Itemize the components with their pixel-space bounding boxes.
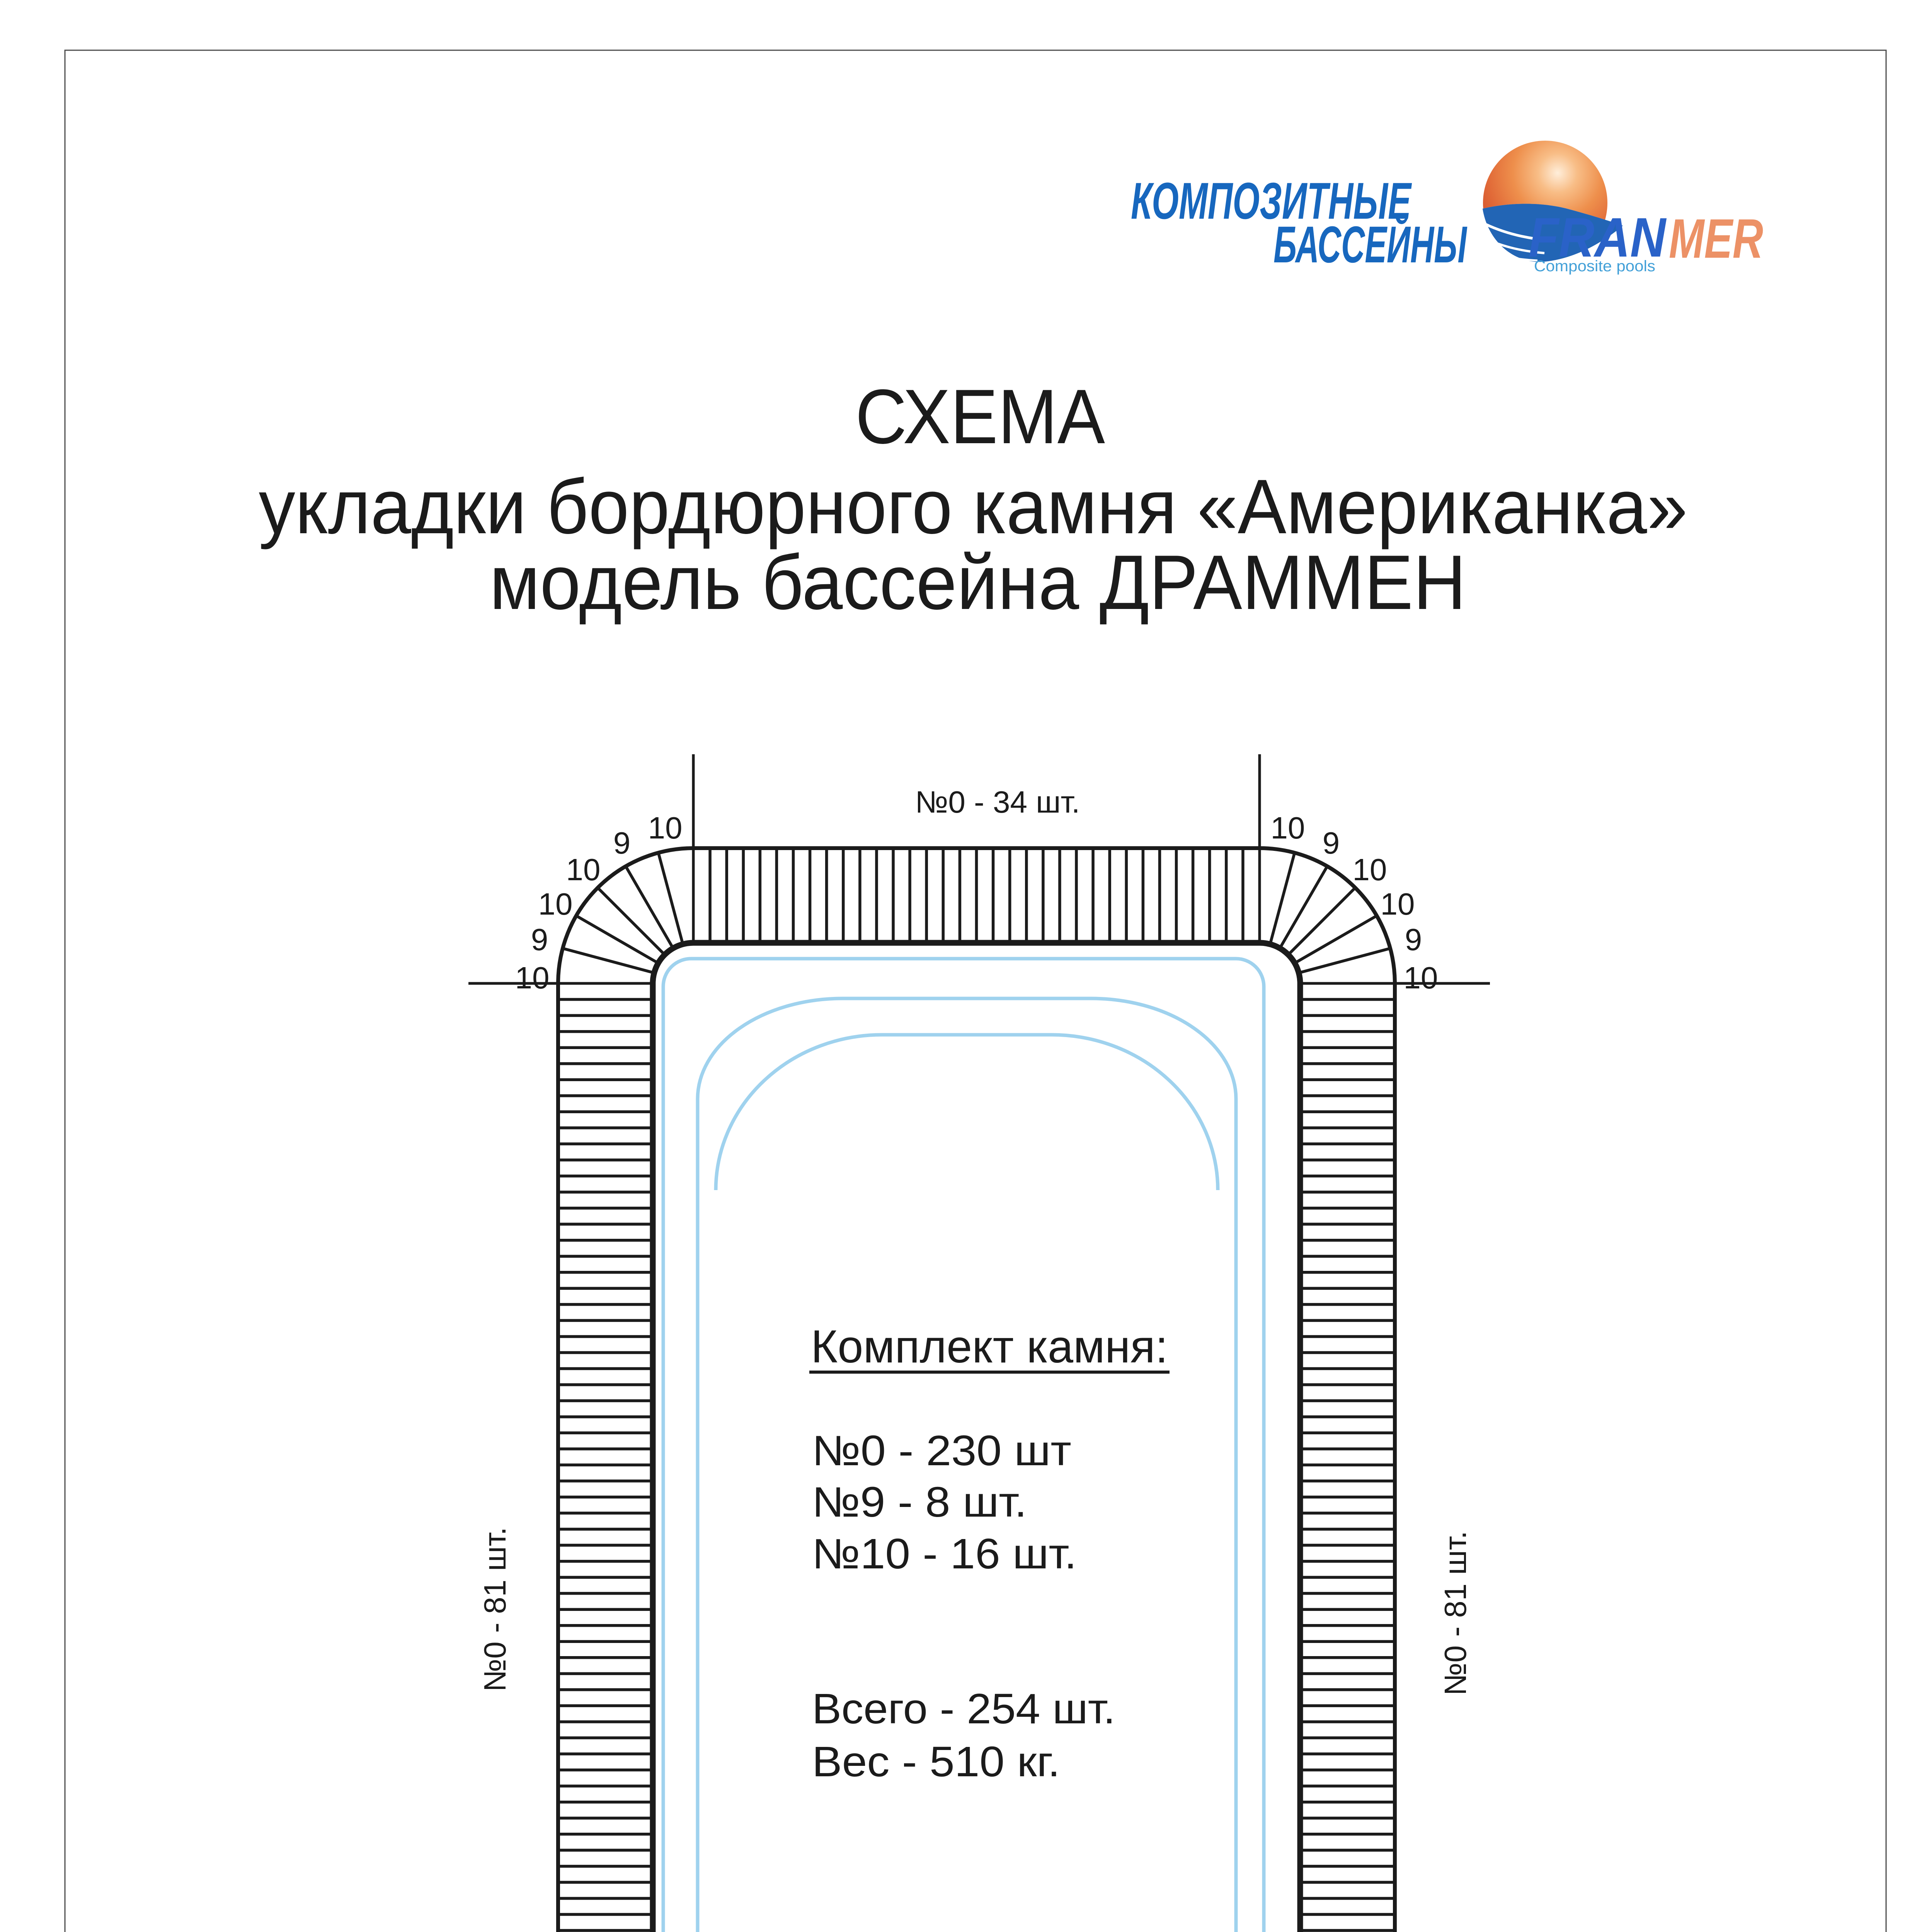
svg-text:БАССЕЙНЫ: БАССЕЙНЫ — [1273, 215, 1468, 274]
svg-text:10: 10 — [1353, 852, 1387, 887]
svg-text:9: 9 — [1323, 826, 1340, 860]
svg-text:Комплект камня:: Комплект камня: — [811, 1321, 1168, 1372]
svg-text:№0 - 230 шт: №0 - 230 шт — [812, 1427, 1071, 1475]
svg-text:Всего - 254 шт.: Всего - 254 шт. — [812, 1685, 1115, 1733]
svg-text:Вес - 510 кг.: Вес - 510 кг. — [812, 1738, 1060, 1786]
svg-text:10: 10 — [1381, 887, 1415, 921]
svg-text:Composite pools: Composite pools — [1534, 258, 1655, 275]
svg-text:№0 - 81 шт.: №0 - 81 шт. — [478, 1527, 512, 1692]
svg-text:10: 10 — [648, 811, 683, 845]
svg-text:10: 10 — [1404, 961, 1438, 995]
svg-text:9: 9 — [1405, 922, 1422, 957]
svg-text:10: 10 — [538, 887, 573, 921]
svg-text:10: 10 — [515, 961, 550, 995]
svg-text:№0 - 34 шт.: №0 - 34 шт. — [915, 785, 1080, 819]
svg-text:№10 - 16 шт.: №10 - 16 шт. — [812, 1530, 1077, 1578]
svg-text:укладки бордюрного камня «Амер: укладки бордюрного камня «Американка» — [259, 464, 1688, 550]
svg-text:№9 - 8 шт.: №9 - 8 шт. — [812, 1478, 1027, 1526]
svg-text:MER: MER — [1669, 207, 1763, 270]
svg-text:№0 - 81 шт.: №0 - 81 шт. — [1438, 1531, 1473, 1696]
svg-text:9: 9 — [531, 922, 548, 957]
svg-text:9: 9 — [613, 826, 631, 860]
svg-text:10: 10 — [566, 852, 601, 887]
svg-text:модель бассейна ДРАММЕН: модель бассейна ДРАММЕН — [490, 539, 1466, 626]
svg-text:СХЕМА: СХЕМА — [855, 374, 1105, 460]
svg-text:10: 10 — [1271, 811, 1305, 845]
